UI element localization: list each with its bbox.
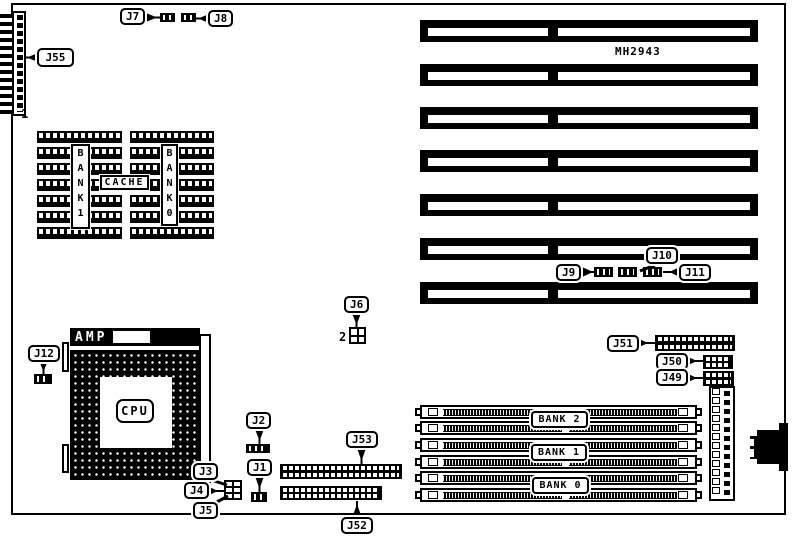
callout-j4: J4 (184, 482, 209, 499)
memory-bank2-label: BANK 2 (531, 411, 588, 428)
callout-j49: J49 (656, 369, 688, 386)
callout-j50: J50 (656, 353, 688, 370)
callout-j5: J5 (193, 502, 218, 519)
callout-j9: J9 (556, 264, 581, 281)
callout-j52: J52 (341, 517, 373, 534)
callout-j1: J1 (247, 459, 272, 476)
callout-j53: J53 (346, 431, 378, 448)
motherboard-diagram: MH2943 1 BANK1 BANK0 CACHE 2 AMP CPU BAN… (0, 0, 792, 537)
callout-j55: J55 (37, 48, 74, 67)
callout-j8: J8 (208, 10, 233, 27)
callout-pointers (0, 0, 792, 537)
callout-j6: J6 (344, 296, 369, 313)
callout-j11: J11 (679, 264, 711, 281)
callout-j2: J2 (246, 412, 271, 429)
callout-j3: J3 (193, 463, 218, 480)
callout-j12: J12 (28, 345, 60, 362)
callout-j10: J10 (646, 247, 678, 264)
memory-bank1-label: BANK 1 (531, 444, 587, 461)
callout-j7: J7 (120, 8, 145, 25)
callout-j51: J51 (607, 335, 639, 352)
memory-bank0-label: BANK 0 (532, 477, 589, 494)
